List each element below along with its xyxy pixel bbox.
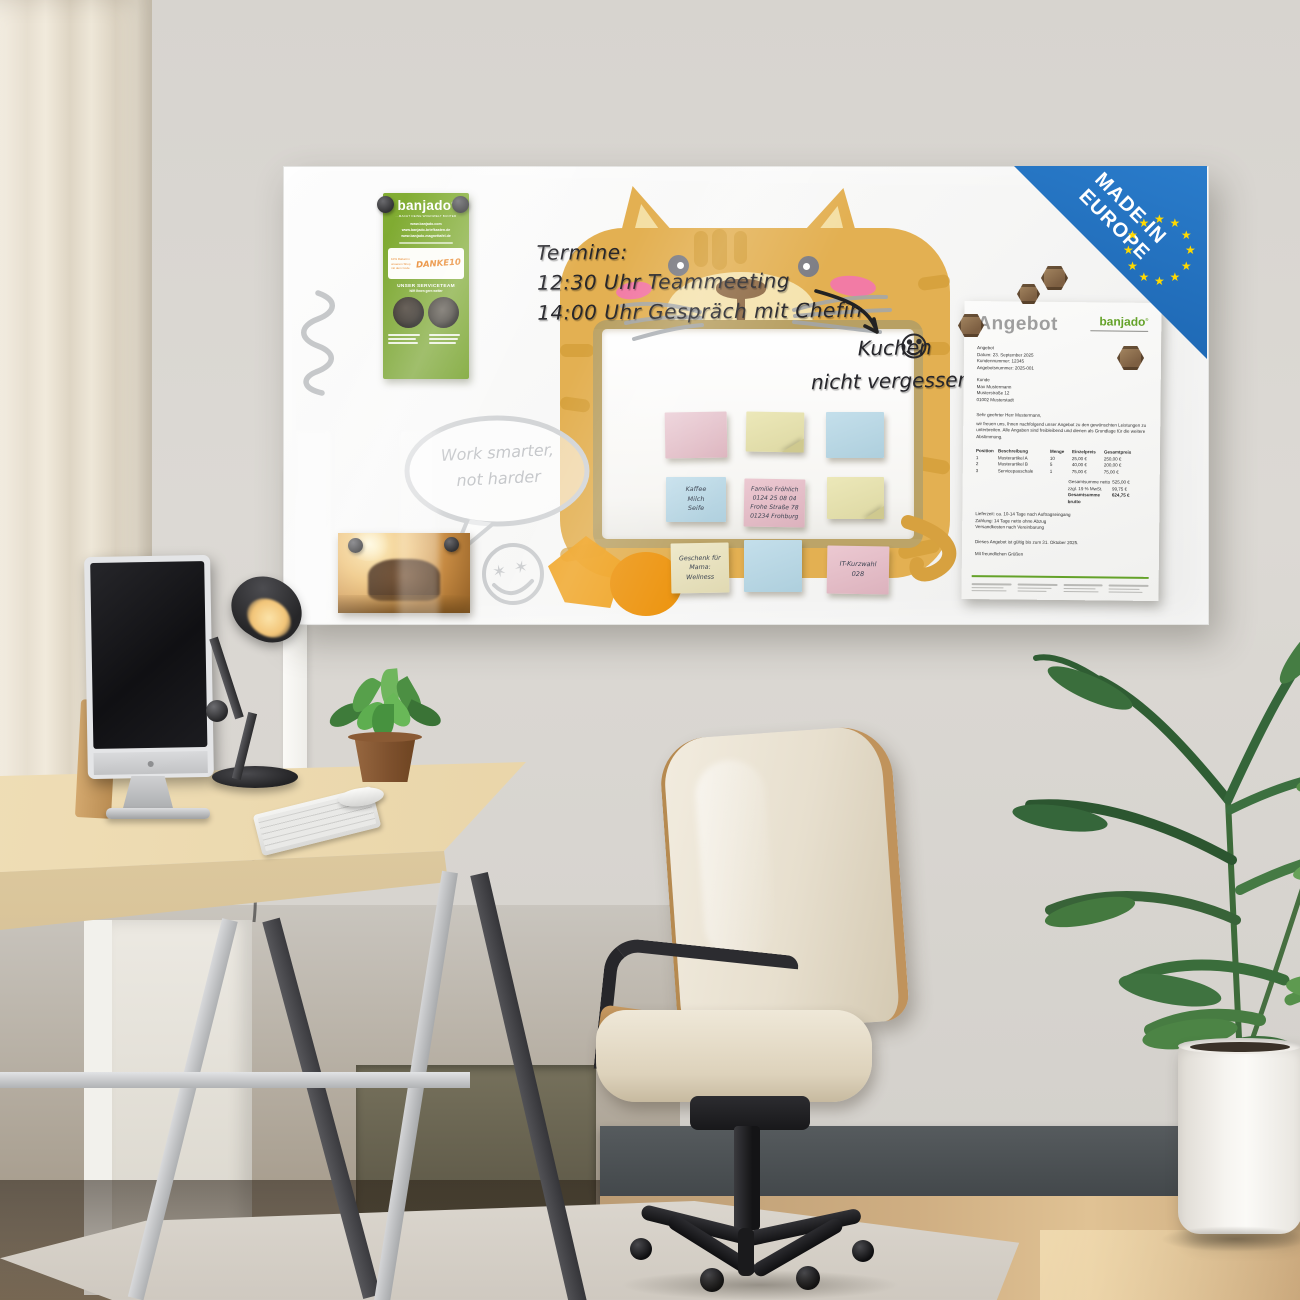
sticky-note-blank-yellow-2	[827, 477, 884, 519]
round-magnet	[348, 538, 363, 553]
note-line: 028	[852, 570, 865, 580]
document-closing: Mit freundlichen Grüßen	[975, 551, 1146, 559]
cat-stripe	[560, 344, 594, 357]
eu-star-icon: ★	[1181, 260, 1192, 272]
chair-base-leg	[738, 1228, 754, 1276]
chair-gas-column	[734, 1126, 760, 1230]
sticky-note-geschenk: Geschenk für Mama: Wellness	[671, 542, 730, 593]
chair-backrest-sheen	[693, 758, 777, 962]
desk-plant-pot-rim	[348, 732, 422, 742]
sticky-note-blank-blue	[826, 412, 884, 458]
registered-mark: ®	[1145, 317, 1148, 322]
document-validity: Dieses Angebot ist gültig bis zum 31. Ok…	[975, 539, 1146, 547]
eu-star-icon: ★	[1170, 271, 1181, 283]
flyer-service-sub: hilft Ihnen gern weiter	[388, 289, 464, 293]
bubble-text: Work smarter, not harder	[417, 436, 580, 496]
banjado-flyer: banjado® ...MACHT DEINE WOHNWELT BUNTER …	[383, 193, 469, 379]
handwriting-kuchen: Kuchen nicht vergessen	[789, 330, 970, 399]
eu-star-icon: ★	[1127, 260, 1138, 272]
note-curl	[864, 506, 884, 519]
round-magnet	[452, 196, 469, 213]
note-line: 01234 Frohburg	[750, 512, 798, 522]
flyer-fineprint-line	[399, 242, 452, 244]
flyer-discount-box: 10% Rabatt in unserem Shop mit dem Code …	[388, 248, 464, 279]
palm-pot-shadow	[1160, 1226, 1300, 1252]
palm-pot-soil	[1190, 1042, 1290, 1052]
note-curl	[782, 438, 804, 452]
flyer-discount-text: 10% Rabatt in unserem Shop mit dem Code	[391, 257, 414, 271]
document-footer-rule	[972, 575, 1149, 579]
note-line: Kaffee	[686, 485, 707, 495]
flyer-discount-code: DANKE10	[416, 257, 462, 270]
sticky-note-blank-yellow	[746, 411, 805, 452]
sticky-note-blank-pink	[665, 411, 728, 458]
document-table-row: 3Servicepauschale175,00 €75,00 €	[976, 468, 1147, 476]
sticky-note-kurzwahl: IT-Kurzwahl 028	[827, 545, 890, 594]
note-line: Geschenk für	[679, 553, 721, 563]
imac-base	[106, 808, 210, 819]
handwriting-line: 12:30 Uhr Teammeeting	[537, 264, 937, 297]
document-title: Angebot	[977, 313, 1058, 336]
flyer-dog-photo	[428, 297, 459, 328]
note-line: Mama:	[689, 563, 711, 573]
sticky-note-blank-blue-2	[744, 540, 802, 592]
chair-seat	[596, 1010, 872, 1102]
desk-stretcher-bar	[0, 1072, 470, 1088]
imac-screen	[90, 561, 207, 749]
document-logo: banjado®	[1090, 314, 1148, 329]
desk-lamp-hinge	[206, 700, 228, 722]
photo-grass	[338, 595, 470, 613]
handwriting-line: Kuchen	[789, 330, 970, 366]
note-line: Milch	[688, 495, 705, 505]
document-salutation: Sehr geehrter Herr Mustermann,	[976, 412, 1147, 420]
note-line: IT-Kurzwahl	[840, 560, 877, 570]
flyer-url: www.banjado-magnettafel.de	[388, 234, 464, 240]
eu-star-icon: ★	[1139, 217, 1150, 229]
desk-lamp-base	[212, 766, 298, 788]
eu-star-icon: ★	[1139, 271, 1150, 283]
flyer-contact-column	[429, 332, 465, 346]
eu-star-icon: ★	[1170, 217, 1181, 229]
handwriting-line: Termine:	[537, 234, 937, 267]
sticky-note-kaffee: Kaffee Milch Seife	[666, 477, 726, 522]
flyer-tagline: ...MACHT DEINE WOHNWELT BUNTER	[388, 214, 464, 218]
angebot-document: Angebot banjado® Angebot Datum: 23. Sept…	[961, 301, 1161, 601]
eu-star-icon: ★	[1185, 244, 1196, 256]
eu-star-icon: ★	[1123, 244, 1134, 256]
logo-address-line	[1090, 330, 1148, 332]
eu-star-icon: ★	[1181, 229, 1192, 241]
apple-logo-icon	[148, 761, 154, 767]
chair-caster	[852, 1240, 874, 1262]
eu-star-icon: ★	[1127, 229, 1138, 241]
imac-monitor	[84, 555, 214, 779]
document-intro: wir freuen uns, Ihnen nachfolgend unser …	[976, 421, 1147, 442]
round-magnet	[444, 537, 459, 552]
document-customer-line: 01002 Musterstadt	[976, 397, 1147, 405]
palm-pot	[1178, 1042, 1300, 1234]
handwriting-line: 14:00 Uhr Gespräch mit Chefin	[537, 294, 937, 327]
handwriting-line: nicht vergessen	[790, 363, 971, 399]
flyer-contact-column	[388, 332, 424, 346]
flyer-dog-photo	[393, 297, 424, 328]
document-total-row: Gesamtsumme brutto624,75 €	[975, 491, 1146, 506]
document-footer-columns	[972, 582, 1149, 595]
home-office-scene: Kaffee Milch Seife Familie Fröhlich 0124…	[0, 0, 1300, 1300]
chair-shadow	[620, 1270, 900, 1300]
chair-mechanism	[690, 1096, 810, 1130]
eu-star-icon: ★	[1154, 275, 1165, 287]
eu-star-icon: ★	[1154, 213, 1165, 225]
round-magnet	[377, 196, 394, 213]
note-line: Seife	[688, 504, 704, 514]
handwriting-termine: Termine: 12:30 Uhr Teammeeting 14:00 Uhr…	[537, 234, 938, 327]
chair-caster	[630, 1238, 652, 1260]
sticky-note-familie: Familie Fröhlich 0124 25 08 04 Frohe Str…	[744, 478, 806, 527]
document-term-line: Versandkosten nach Vereinbarung	[975, 524, 1146, 532]
note-line: Wellness	[686, 572, 714, 582]
